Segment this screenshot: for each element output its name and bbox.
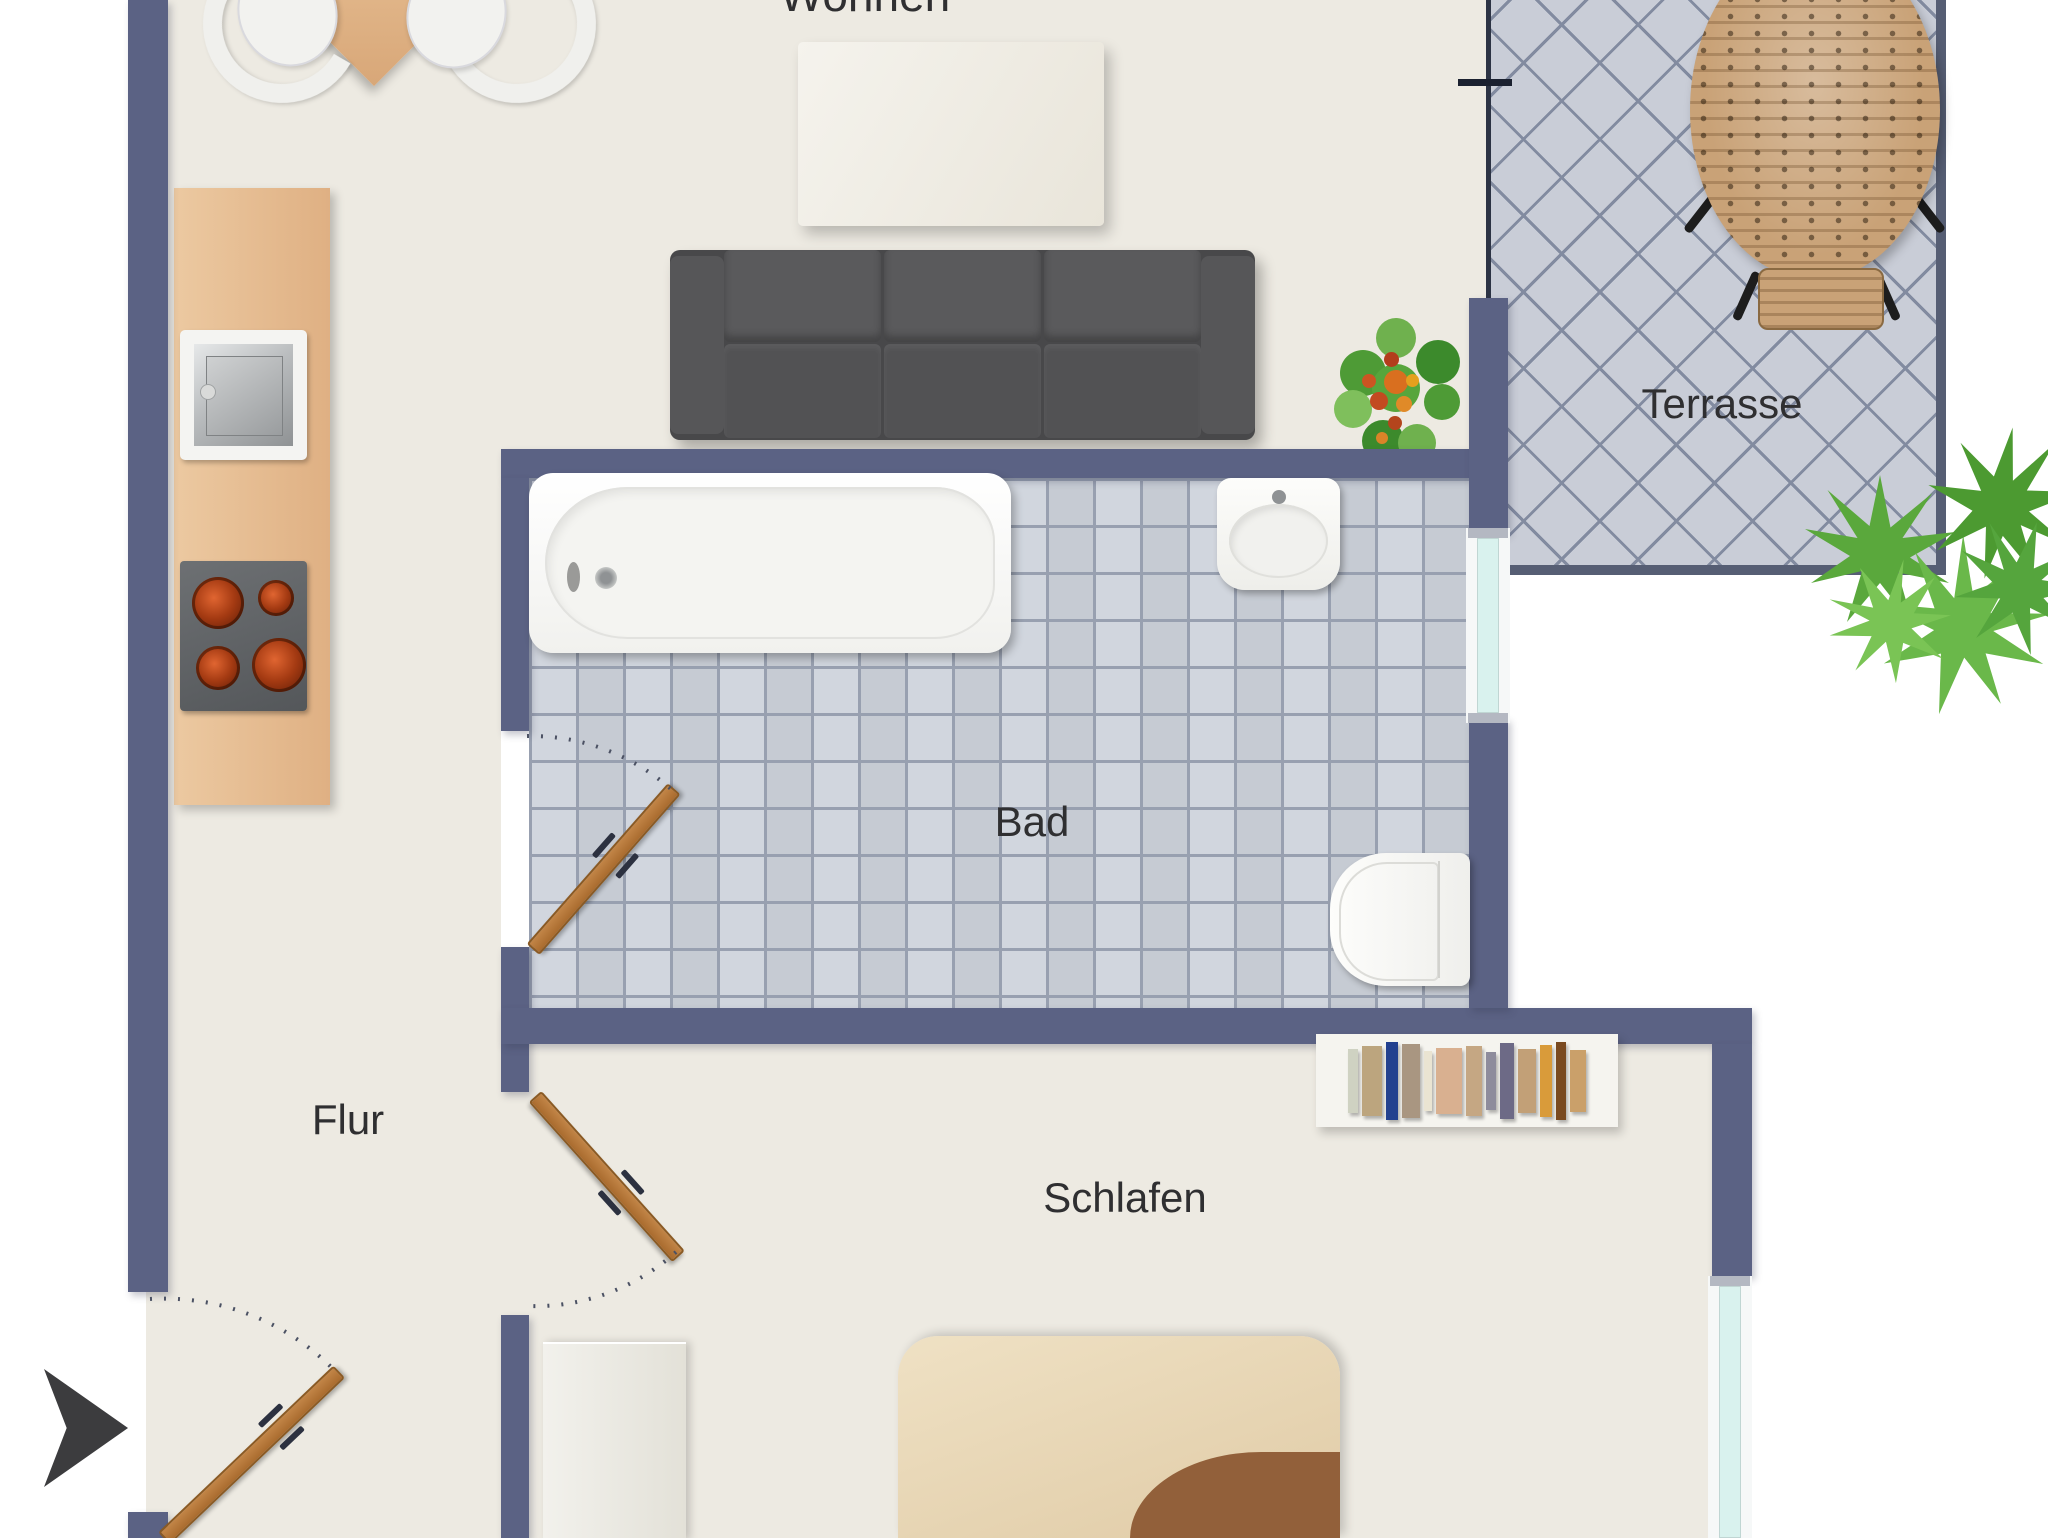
book-spine [1540,1045,1552,1117]
toilet-seat [1339,862,1439,981]
book-spine [1500,1043,1514,1119]
wall-right-lower [1469,718,1508,1008]
kitchen-sink-basin [206,356,283,436]
bookshelf-books [1316,1034,1618,1127]
room-label-terrasse: Terrasse [1641,380,1802,428]
sofa-back-cushion [1044,250,1201,342]
burner-icon [196,646,240,690]
wall-right-upper [1469,298,1508,533]
book-spine [1424,1051,1432,1111]
plant-flower-dot [1384,352,1399,367]
plant-leaf [1416,340,1460,384]
coffee-table [798,42,1104,226]
bedroom-window [1708,1276,1752,1538]
wicker-chair-body [1690,0,1940,280]
book-spine [1348,1049,1358,1113]
wicker-chair [1690,0,1940,340]
sofa-armrest [1201,256,1255,434]
wall-bedroom-right [1712,1044,1752,1276]
kitchen-counter [174,188,330,805]
toilet-tank [1438,861,1440,978]
window-glass [1719,1286,1741,1538]
burner-icon [192,577,244,629]
plant-flower-dot [1388,416,1402,430]
plant-leaf [1424,384,1460,420]
kitchen-faucet-icon [200,384,216,400]
sofa [670,250,1255,440]
book-spine [1556,1042,1566,1120]
bathtub-drain-icon [595,567,617,589]
stove-cooktop [180,561,307,711]
sofa-seat-cushion [724,344,881,438]
book-spine [1386,1042,1398,1120]
toilet [1330,853,1470,986]
sofa-seat-cushion [884,344,1041,438]
book-spine [1466,1046,1482,1116]
wall-hallway-bottom [501,1315,529,1538]
bathtub-faucet-icon [567,562,580,592]
bed [898,1336,1340,1538]
wall-left-outer [128,0,168,1292]
bed-blanket [1130,1452,1340,1538]
room-label-wohnen: Wohnen [780,0,951,22]
bathroom-sink-basin [1229,504,1328,578]
bathroom-sink-faucet-icon [1272,490,1286,504]
plant-flower-dot [1362,374,1376,388]
bathtub [529,473,1011,653]
window-sill [1468,528,1508,538]
plant-leaf [1334,390,1372,428]
bathtub-basin [545,487,995,639]
book-spine [1570,1050,1586,1112]
plant-flower-dot [1384,370,1408,394]
chair-leg [1732,270,1761,321]
sofa-armrest [670,256,724,434]
book-spine [1518,1049,1536,1113]
wardrobe [543,1342,686,1538]
plant-flower-dot [1370,392,1388,410]
bathroom-sink [1217,478,1340,590]
book-spine [1436,1048,1462,1114]
book-spine [1362,1046,1382,1116]
wicker-footrest [1758,268,1884,330]
window-sill [1468,713,1508,723]
bathroom-window [1466,528,1510,723]
book-spine [1402,1044,1420,1118]
entrance-arrow-icon [44,1369,128,1487]
room-label-schlafen: Schlafen [1043,1174,1206,1222]
sofa-back-cushion [884,250,1041,342]
room-label-flur: Flur [312,1096,384,1144]
book-spine [1486,1052,1496,1110]
room-label-bad: Bad [995,798,1070,846]
wall-tick-mark [1458,79,1512,86]
plant-flower-dot [1376,432,1388,444]
terrace-glass-wall [1486,0,1491,298]
plant-flower-dot [1406,374,1419,387]
floor-plan: Wohnen Terrasse Bad Flur Schlafen [0,0,2048,1538]
plant-flower-dot [1396,396,1412,412]
plant-leaf [1376,318,1416,358]
burner-icon [258,580,294,616]
window-glass [1477,538,1499,713]
bookshelf [1316,1034,1618,1127]
window-sill [1710,1276,1750,1286]
sofa-back-cushion [724,250,881,342]
burner-icon [252,638,306,692]
wall-bathroom-left [501,478,529,731]
sofa-seat-cushion [1044,344,1201,438]
